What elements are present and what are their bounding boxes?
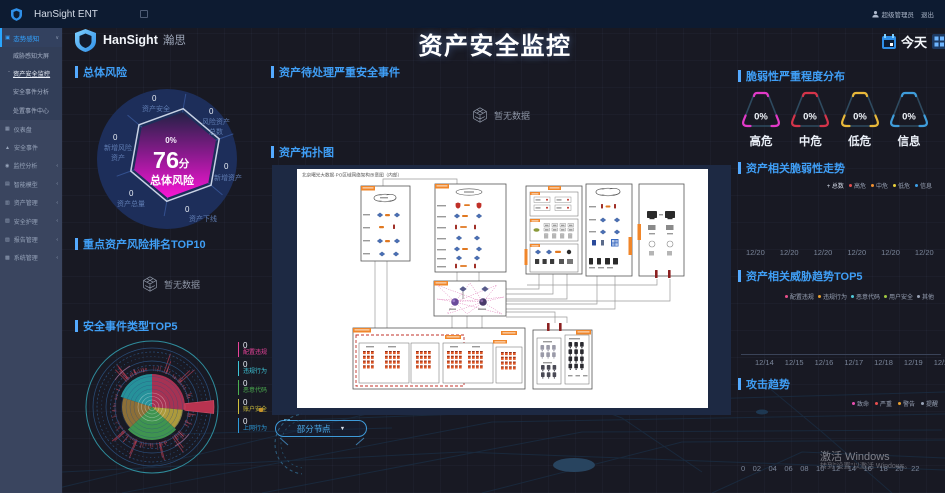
svg-text:北京曙光大数据·PO区域网络架构示意图（内部）: 北京曙光大数据·PO区域网络架构示意图（内部） xyxy=(302,172,402,179)
svg-text:0%: 0% xyxy=(803,112,817,123)
svg-text:0%: 0% xyxy=(754,112,768,123)
svg-text:0%: 0% xyxy=(902,112,916,123)
svg-text:0%: 0% xyxy=(853,112,867,123)
